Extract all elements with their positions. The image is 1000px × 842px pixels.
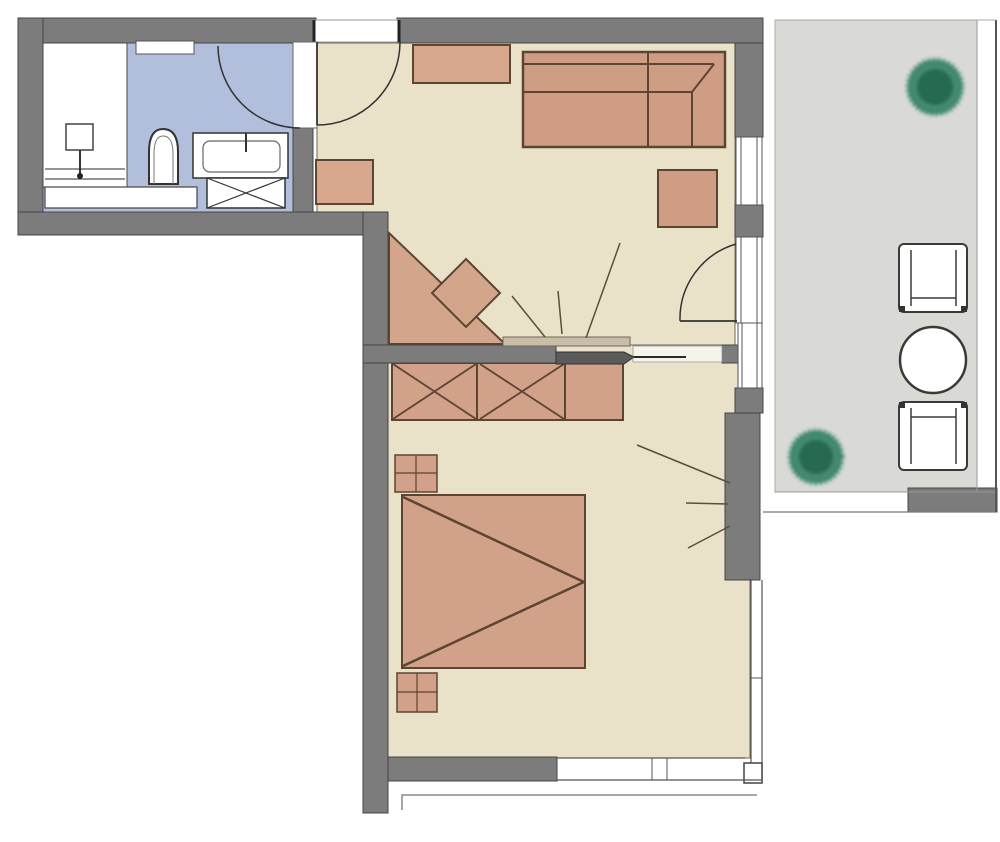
terrace-door-sill bbox=[736, 237, 762, 323]
coffee-table bbox=[658, 170, 717, 227]
terrace-plant-top-foliage bbox=[917, 69, 953, 105]
bathroom-bench bbox=[45, 187, 197, 208]
right-wall-mid bbox=[735, 205, 763, 237]
entry-sideboard bbox=[413, 45, 510, 83]
terrace-chair-bottom-foot-left bbox=[899, 402, 905, 408]
right-wall-top bbox=[735, 43, 763, 137]
terrace-plant-bottom bbox=[790, 431, 842, 483]
floor-plan-image bbox=[0, 0, 1000, 842]
terrace-chair-top-foot-right bbox=[961, 306, 967, 312]
top-wall-left bbox=[18, 18, 316, 43]
bedroom-fan-line-2 bbox=[686, 503, 728, 504]
passage-sill bbox=[633, 346, 722, 362]
bedroom-bottom-wall bbox=[388, 757, 557, 781]
top-wall-right bbox=[397, 18, 763, 43]
terrace-chair-top-foot-left bbox=[899, 306, 905, 312]
shower-drain-dot bbox=[77, 173, 83, 179]
entrance-step bbox=[313, 20, 400, 42]
toilet bbox=[149, 129, 178, 184]
bedroom-right-wall bbox=[725, 413, 760, 580]
sink-basin bbox=[203, 141, 280, 172]
bathroom-doorway bbox=[293, 42, 317, 128]
terrace-plant-bottom-foliage bbox=[799, 440, 833, 474]
double-bed bbox=[402, 495, 585, 668]
shower-floor bbox=[43, 43, 127, 187]
corner-sofa bbox=[523, 52, 725, 147]
left-wall-lower bbox=[363, 212, 388, 813]
bathroom-bottom-wall bbox=[18, 212, 388, 235]
wardrobe bbox=[392, 363, 623, 420]
right-wall-window-1 bbox=[736, 137, 762, 205]
left-outer-wall bbox=[18, 18, 43, 235]
right-wall-low bbox=[735, 388, 763, 413]
terrace-plant-top bbox=[908, 60, 962, 114]
terrace-chair-top bbox=[899, 244, 967, 312]
terrace-chair-bottom bbox=[899, 402, 967, 470]
outer-sill-line bbox=[402, 795, 757, 810]
floor-plan-canvas bbox=[0, 0, 1000, 842]
bathroom-right-wall bbox=[293, 127, 313, 212]
shower-head-box bbox=[66, 124, 93, 150]
divider-wall bbox=[363, 345, 556, 363]
side-table bbox=[316, 160, 373, 204]
sliding-door-panel bbox=[556, 352, 634, 364]
terrace-round-table bbox=[900, 327, 966, 393]
bathroom-window bbox=[136, 41, 194, 54]
terrace-chair-bottom-foot-right bbox=[961, 402, 967, 408]
sliding-door-pocket bbox=[503, 337, 630, 346]
